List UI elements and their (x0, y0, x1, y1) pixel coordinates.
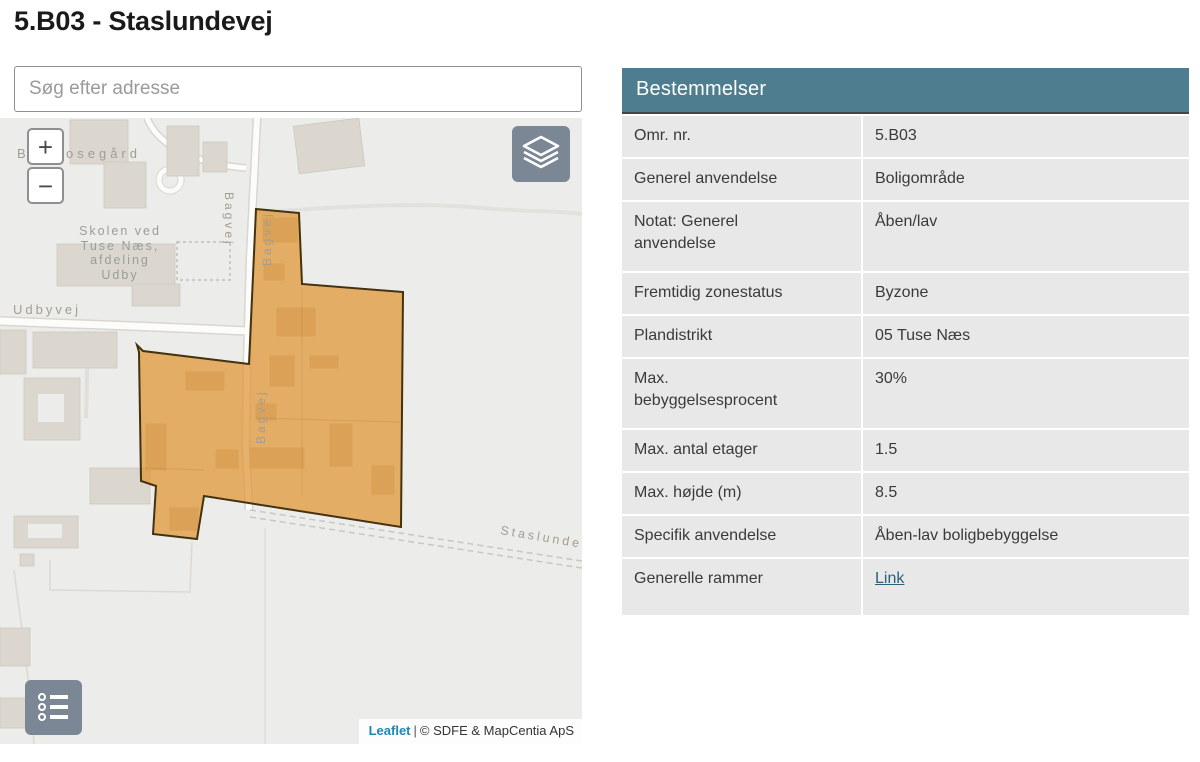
table-row: Plandistrikt 05 Tuse Næs (622, 316, 1189, 357)
row-value: 8.5 (861, 473, 1189, 514)
row-label: Specifik anvendelse (622, 516, 861, 557)
table-row: Generel anvendelse Boligområde (622, 159, 1189, 200)
plan-page: 5.B03 - Staslundevej (0, 0, 1200, 762)
row-value: Åben/lav (861, 202, 1189, 271)
map-canvas (0, 118, 582, 744)
row-label: Generelle rammer (622, 559, 861, 615)
bestemmelser-table: Bestemmelser Omr. nr. 5.B03 Generel anve… (622, 66, 1189, 617)
zoom-in-button[interactable]: + (27, 128, 64, 165)
address-search-input[interactable] (14, 66, 582, 112)
attribution-divider: | (414, 723, 417, 738)
generelle-rammer-link[interactable]: Link (875, 570, 904, 587)
row-label: Max. højde (m) (622, 473, 861, 514)
table-header: Bestemmelser (622, 68, 1189, 114)
row-label: Omr. nr. (622, 116, 861, 157)
row-label: Fremtidig zonestatus (622, 273, 861, 314)
row-label: Generel anvendelse (622, 159, 861, 200)
table-row: Generelle rammer Link (622, 559, 1189, 615)
table-row: Fremtidig zonestatus Byzone (622, 273, 1189, 314)
row-value: Byzone (861, 273, 1189, 314)
row-label: Max. antal etager (622, 430, 861, 471)
row-label: Max. bebyggelsesprocent (622, 359, 861, 428)
row-value: Boligområde (861, 159, 1189, 200)
legend-list-icon (25, 680, 82, 735)
layers-icon (512, 126, 570, 182)
table-row: Specifik anvendelse Åben-lav boligbebygg… (622, 516, 1189, 557)
row-label: Plandistrikt (622, 316, 861, 357)
table-row: Notat: Generel anvendelse Åben/lav (622, 202, 1189, 271)
layers-button[interactable] (512, 126, 570, 182)
row-value: 1.5 (861, 430, 1189, 471)
zoom-out-button[interactable]: − (27, 167, 64, 204)
row-value: 30% (861, 359, 1189, 428)
row-value: 05 Tuse Næs (861, 316, 1189, 357)
row-value: 5.B03 (861, 116, 1189, 157)
map[interactable]: B osegård Skolen ved Tuse Næs, afdeling … (0, 118, 582, 744)
row-label: Notat: Generel anvendelse (622, 202, 861, 271)
row-value: Åben-lav boligbebyggelse (861, 516, 1189, 557)
page-title: 5.B03 - Staslundevej (14, 6, 273, 37)
leaflet-link[interactable]: Leaflet (369, 723, 411, 738)
row-value: Link (861, 559, 1189, 615)
table-row: Max. højde (m) 8.5 (622, 473, 1189, 514)
attribution-copyright: © SDFE & MapCentia ApS (420, 723, 574, 738)
table-row: Max. bebyggelsesprocent 30% (622, 359, 1189, 428)
legend-button[interactable] (25, 680, 82, 735)
map-attribution: Leaflet|© SDFE & MapCentia ApS (359, 719, 582, 744)
table-row: Omr. nr. 5.B03 (622, 116, 1189, 157)
table-row: Max. antal etager 1.5 (622, 430, 1189, 471)
